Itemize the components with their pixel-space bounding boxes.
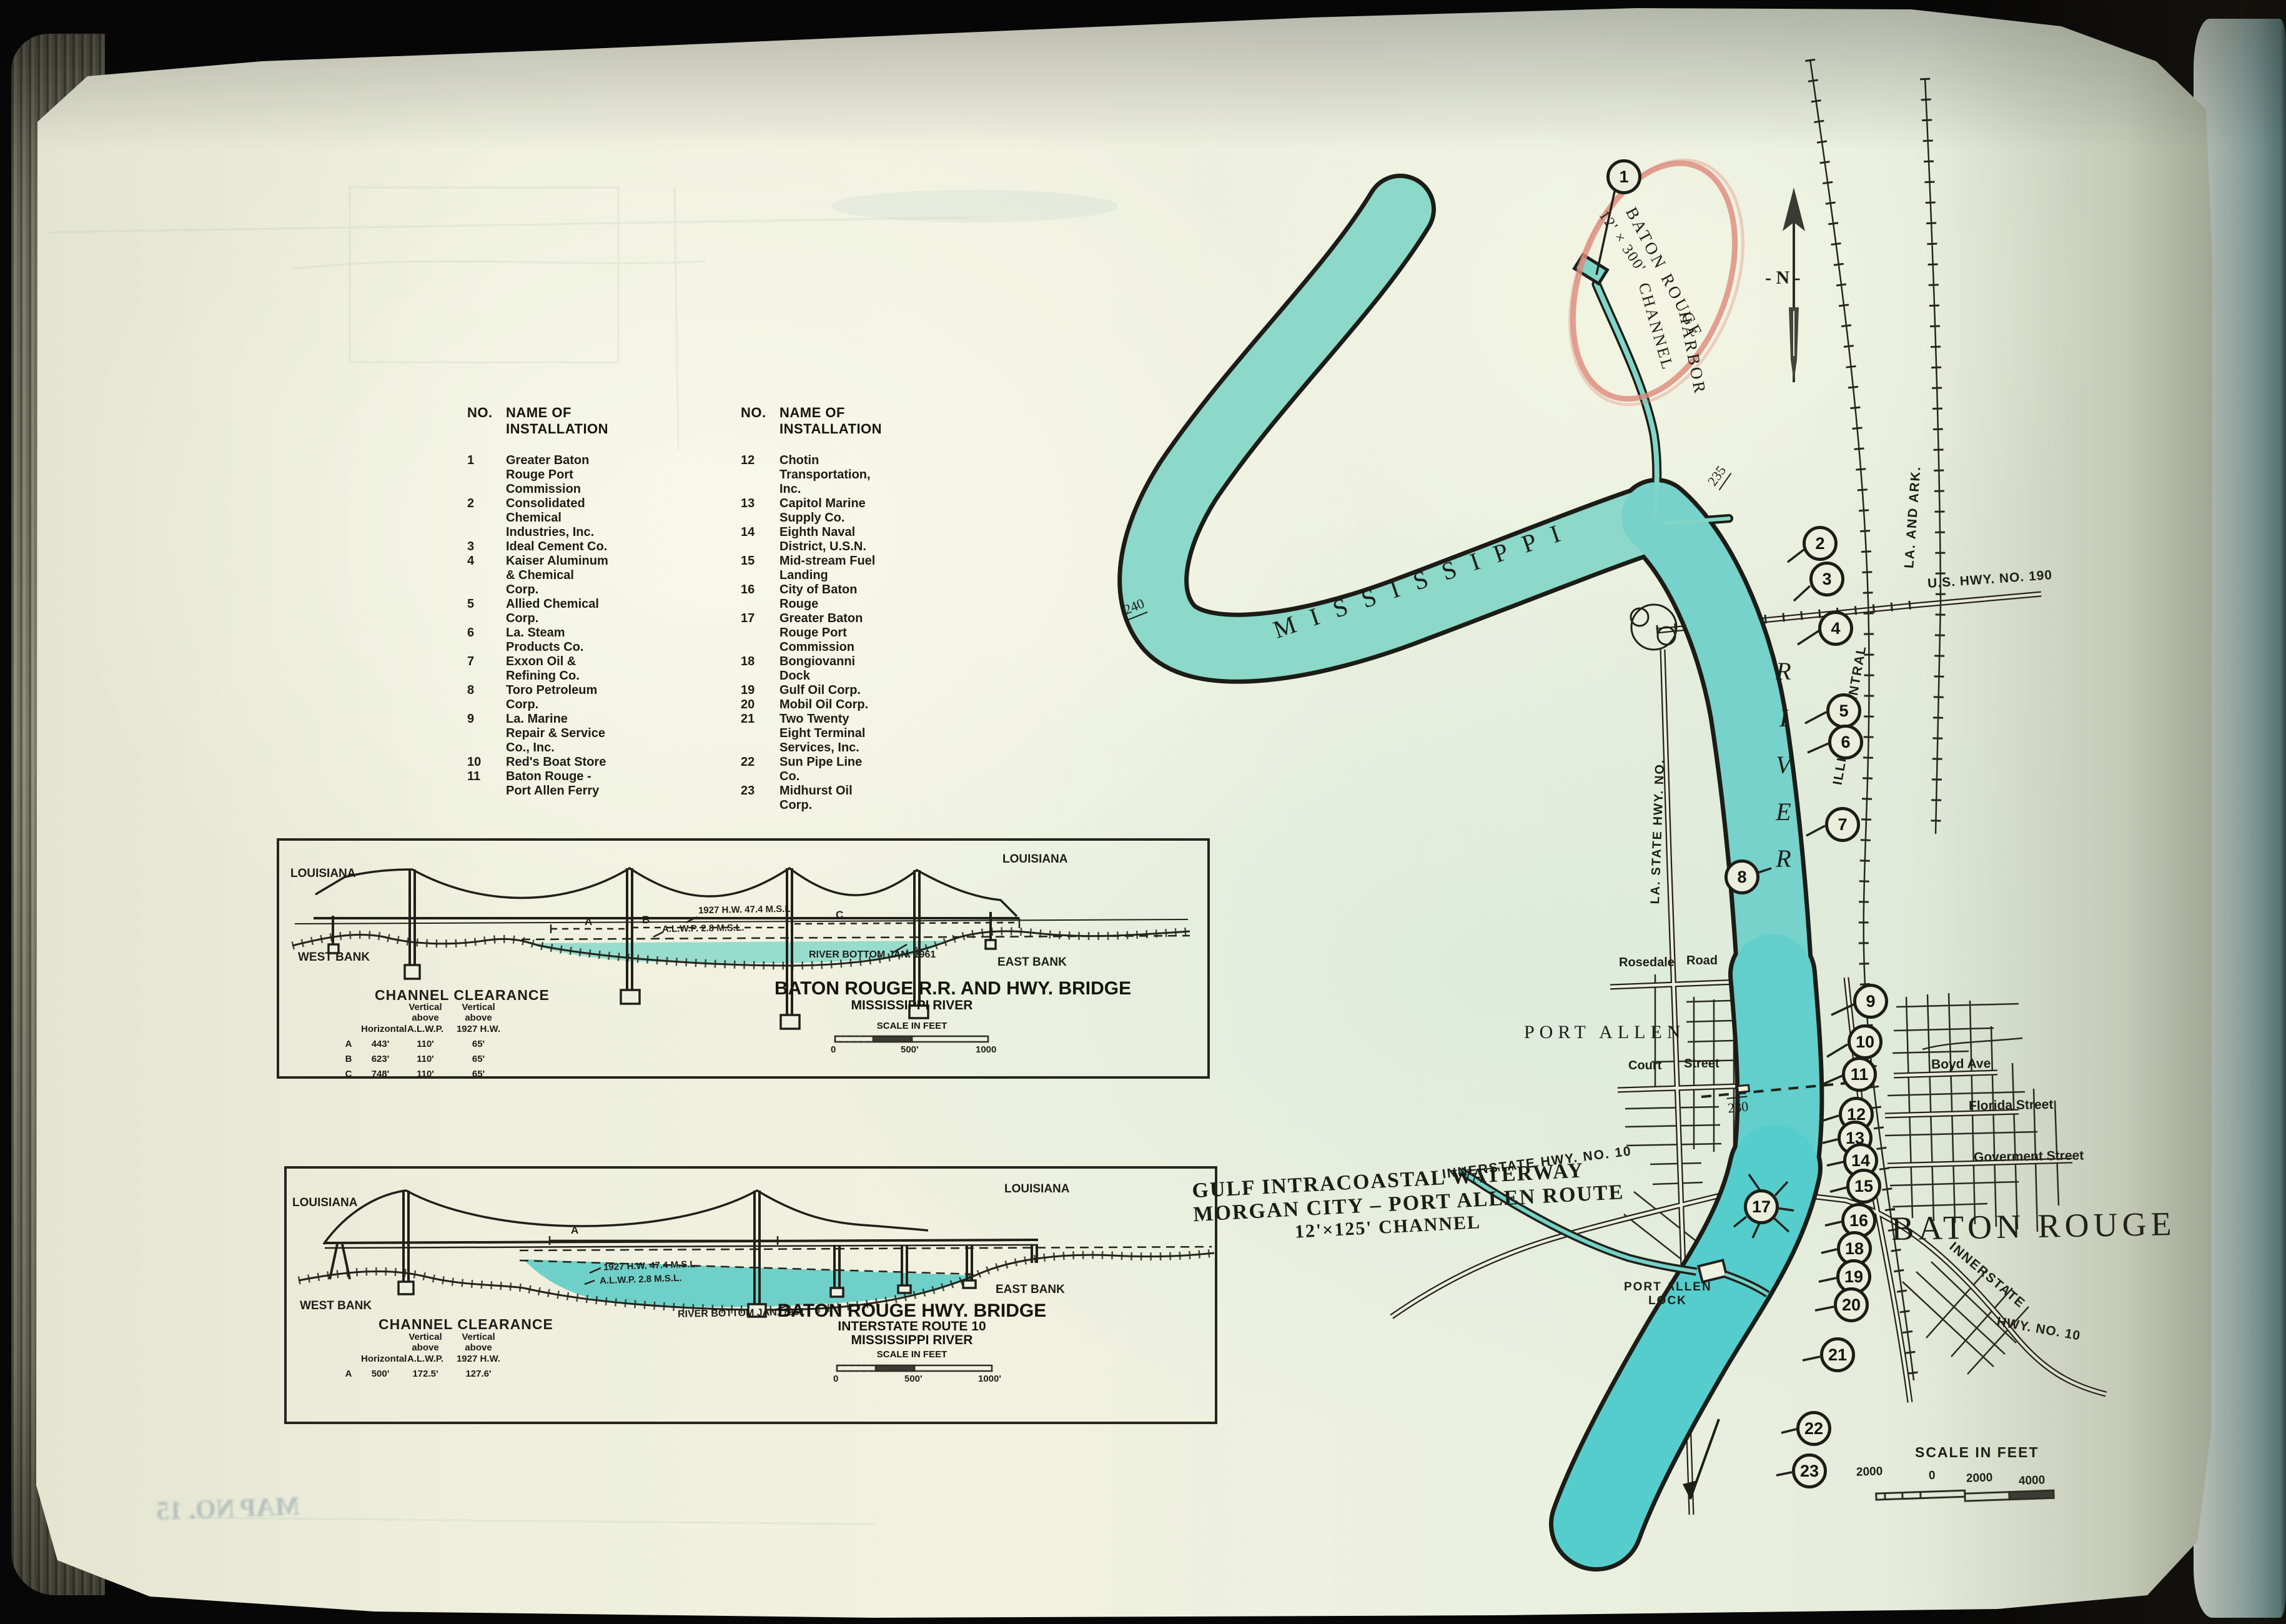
d1-span-b: B (642, 914, 650, 926)
map-marker-11: 11 (1842, 1057, 1877, 1092)
d2-louisiana-left: LOUISIANA (292, 1196, 358, 1210)
map-marker-2: 2 (1803, 526, 1838, 561)
map-marker-15: 15 (1846, 1169, 1881, 1204)
map-marker-17: 17 (1744, 1189, 1779, 1224)
d2-east-bank: EAST BANK (996, 1283, 1065, 1297)
map-marker-21: 21 (1820, 1337, 1855, 1372)
d2-clearance-table: Horizontal Verticalabove A.L.W.P. Vertic… (336, 1332, 506, 1379)
d1-scale-1000: 1000 (976, 1044, 996, 1055)
map-marker-10: 10 (1848, 1024, 1883, 1059)
list-item: 14Eighth Naval District, U.S.N. (741, 525, 882, 554)
list-item: 1Greater Baton Rouge Port Commission (467, 453, 608, 497)
map-marker-20: 20 (1834, 1287, 1869, 1322)
d1-subtitle: MISSISSIPPI RIVER (774, 998, 1049, 1013)
baton-rouge-city-label: BATON ROUGE (1891, 1204, 2176, 1248)
river-name: RIVER (1769, 657, 1798, 891)
map-marker-8: 8 (1724, 859, 1759, 894)
list-item: 9La. Marine Repair & Service Co., Inc. (467, 712, 608, 755)
map-marker-5: 5 (1826, 693, 1861, 728)
map-marker-9: 9 (1853, 984, 1888, 1019)
d2-clearance-title: CHANNEL CLEARANCE (379, 1316, 553, 1333)
d2-col-horizontal: Horizontal (361, 1354, 400, 1364)
list-header: NO. NAME OF INSTALLATION (467, 405, 608, 437)
red-annotation-circle (1537, 135, 1775, 429)
boyd-ave-label: Boyd Ave (1931, 1056, 1991, 1072)
map-marker-1: 1 (1606, 159, 1641, 194)
map-scale-title: SCALE IN FEET (1915, 1444, 2039, 1461)
d2-span-a: A (571, 1224, 578, 1237)
list-item: 22Sun Pipe Line Co. (741, 755, 882, 784)
d1-span-a: A (585, 916, 592, 928)
map-marker-3: 3 (1809, 562, 1844, 597)
d2-subtitle-river: MISSISSIPPI RIVER (774, 1333, 1049, 1348)
mississippi-river (1153, 209, 1779, 1524)
list-item: 23Midhurst Oil Corp. (741, 784, 882, 813)
col-name-header: NAME OF INSTALLATION (779, 405, 882, 437)
compass-label: - N - (1765, 267, 1801, 289)
d1-clearance-title: CHANNEL CLEARANCE (375, 987, 550, 1004)
river-mile-230: 230 (1727, 1096, 1749, 1116)
list-item: 10Red's Boat Store (467, 755, 608, 770)
list-item: 21Two Twenty Eight Terminal Services, In… (741, 712, 882, 755)
map-marker-7: 7 (1825, 807, 1860, 842)
list-item: 15Mid-stream Fuel Landing (741, 554, 882, 583)
list-item: 2Consolidated Chemical Industries, Inc. (467, 497, 608, 540)
map-marker-23: 23 (1792, 1453, 1827, 1488)
list-item: 8Toro Petroleum Corp. (467, 683, 608, 712)
installation-list-col1: NO. NAME OF INSTALLATION 1Greater Baton … (467, 405, 608, 652)
map-scale-2000-right: 2000 (1966, 1471, 1993, 1485)
port-allen-city-label: PORT ALLEN (1524, 1022, 1686, 1043)
list-item: 12Chotin Transportation, Inc. (741, 453, 882, 497)
map-marker-4: 4 (1818, 611, 1853, 646)
d2-scale-0: 0 (833, 1374, 838, 1384)
d1-louisiana-left: LOUISIANA (290, 867, 356, 881)
d1-scale-0: 0 (831, 1044, 836, 1055)
list-item: 18Bongiovanni Dock (741, 655, 882, 683)
d1-col-vert-hw: Vertical above1927 H.W. (451, 1002, 506, 1034)
list-item: 6La. Steam Products Co. (467, 626, 608, 655)
d1-river-bottom-label: RIVER BOTTOM JAN. 1961 (809, 949, 936, 961)
rosedale-label: Rosedale (1619, 956, 1675, 970)
photographed-atlas-page: { "list": { "h_no": "NO.", "h_name": "NA… (0, 0, 2286, 1624)
col-no-header: NO. (467, 405, 502, 437)
list-item: 19Gulf Oil Corp. (741, 683, 882, 698)
d1-col-horizontal: Horizontal (361, 1024, 400, 1034)
florida-street-label: Florida Street (1969, 1097, 2054, 1114)
court-label: Court (1628, 1059, 1661, 1073)
d1-alwp-label: A.L.W.P. 2.8 M.S.L. (662, 923, 745, 934)
d2-title: BATON ROUGE HWY. BRIDGE (774, 1300, 1049, 1322)
installation-list-col2: NO. NAME OF INSTALLATION 12Chotin Transp… (741, 405, 882, 660)
d2-west-bank: WEST BANK (300, 1299, 372, 1313)
list-item: 7Exxon Oil & Refining Co. (467, 655, 608, 683)
d2-louisiana-right: LOUISIANA (1004, 1182, 1070, 1196)
map-scale-bar (1876, 1487, 2054, 1504)
list-item: 16City of Baton Rouge (741, 583, 882, 611)
col-no-header: NO. (741, 405, 776, 437)
ferry-boat-symbol (1738, 1085, 1749, 1092)
goverment-street-label: Goverment Street (1974, 1148, 2084, 1165)
map-marker-6: 6 (1828, 725, 1863, 760)
map-scale-0: 0 (1929, 1469, 1936, 1483)
list-item: 20Mobil Oil Corp. (741, 698, 882, 712)
list-item: 5Allied Chemical Corp. (467, 597, 608, 626)
baton-rouge-street-grid (1885, 993, 2059, 1374)
d1-east-bank: EAST BANK (997, 956, 1067, 969)
d2-subtitle-route: INTERSTATE ROUTE 10 (774, 1319, 1049, 1334)
d2-scale-500: 500' (904, 1374, 923, 1384)
d2-scale-1000: 1000' (978, 1374, 1001, 1384)
d2-col-vert-alwp: Verticalabove A.L.W.P. (400, 1332, 451, 1364)
d1-1927-hw-label: 1927 H.W. 47.4 M.S.L. (698, 904, 793, 916)
map-scale-4000: 4000 (2019, 1473, 2046, 1488)
street-label: Street (1684, 1057, 1719, 1071)
list-item: 13Capitol Marine Supply Co. (741, 497, 882, 525)
list-item: 11Baton Rouge - Port Allen Ferry (467, 770, 608, 798)
d1-west-bank: WEST BANK (298, 951, 370, 964)
map-scale-2000-left: 2000 (1856, 1465, 1883, 1479)
list-item: 4Kaiser Aluminum & Chemical Corp. (467, 554, 608, 597)
d1-louisiana-right: LOUISIANA (1002, 853, 1068, 866)
list-header: NO. NAME OF INSTALLATION (741, 405, 882, 437)
port-allen-lock-label: PORT ALLEN LOCK (1624, 1280, 1711, 1308)
road-label: Road (1686, 954, 1718, 968)
d1-span-c: C (836, 909, 843, 921)
d1-scale-title: SCALE IN FEET (774, 1021, 1049, 1031)
d1-clearance-table: Horizontal Verticalabove A.L.W.P. Vertic… (336, 1002, 506, 1080)
d1-col-vert-alwp: Verticalabove A.L.W.P. (400, 1002, 451, 1034)
bleed-smudge (831, 190, 1118, 222)
map-marker-22: 22 (1796, 1411, 1831, 1446)
d1-scale-500: 500' (901, 1044, 919, 1055)
d2-col-vert-hw: Vertical above1927 H.W. (451, 1332, 506, 1364)
d1-title: BATON ROUGE R.R. AND HWY. BRIDGE (774, 978, 1049, 999)
d2-scale-title: SCALE IN FEET (774, 1349, 1049, 1360)
list-item: 17Greater Baton Rouge Port Commission (741, 611, 882, 655)
col-name-header: NAME OF INSTALLATION (506, 405, 608, 437)
list-item: 3Ideal Cement Co. (467, 540, 608, 554)
hwy-bridge-diagram-box (284, 1166, 1217, 1424)
